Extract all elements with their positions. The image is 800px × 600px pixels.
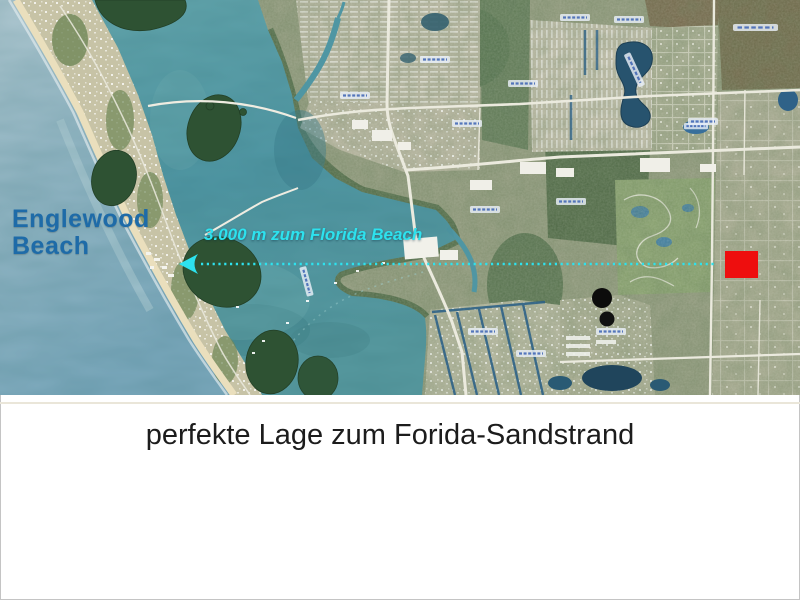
satellite-map: Englewood Beach 3.000 m zum Florida Beac… (0, 0, 800, 395)
place-label-englewood-beach: Englewood Beach (12, 206, 150, 260)
distance-label: 3.000 m zum Florida Beach (204, 225, 422, 245)
slide-caption: perfekte Lage zum Forida-Sandstrand (0, 419, 780, 452)
place-label-line1: Englewood (12, 206, 150, 233)
map-bottom-divider (0, 402, 800, 404)
slide: Englewood Beach 3.000 m zum Florida Beac… (0, 0, 800, 600)
place-label-line2: Beach (12, 233, 150, 260)
satellite-map-image (0, 0, 800, 395)
